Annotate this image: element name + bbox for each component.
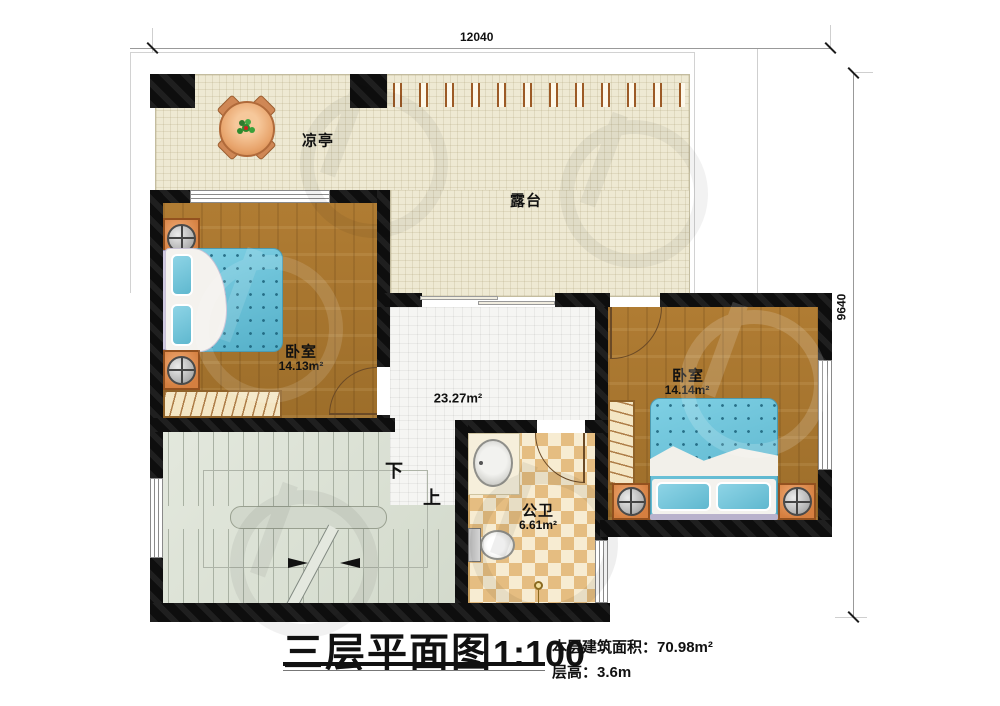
area-bedroom-left: 14.13m² xyxy=(279,359,324,373)
wall-segment xyxy=(377,293,422,307)
window xyxy=(818,360,832,470)
terrace-railing xyxy=(393,83,685,107)
door-leaf xyxy=(610,307,612,359)
wardrobe-left-bedroom xyxy=(163,390,282,418)
lamp-icon xyxy=(617,487,646,516)
wall-segment xyxy=(377,190,390,367)
label-terrace: 露台 xyxy=(510,190,542,211)
nightstand xyxy=(163,350,200,390)
dimension-top-value: 12040 xyxy=(460,30,493,44)
area-bedroom-right: 14.14m² xyxy=(665,383,710,397)
pillow xyxy=(171,304,193,346)
window xyxy=(150,478,163,558)
stair-arrow-left-icon xyxy=(340,558,360,568)
floor-drain-stem xyxy=(538,590,539,604)
floor-height-text: 层高：3.6m xyxy=(552,661,631,682)
floor-area-text: 本层建筑面积：70.98m² xyxy=(552,636,713,657)
lamp-icon xyxy=(783,487,812,516)
stair-up-label: 上 xyxy=(423,484,441,510)
stair-arrow-right-icon xyxy=(288,558,308,568)
wall-segment xyxy=(660,293,832,307)
label-pavilion: 凉亭 xyxy=(302,130,334,151)
bed-left xyxy=(165,248,283,352)
dimension-line-top xyxy=(130,48,830,49)
sliding-door xyxy=(420,296,498,300)
wall-segment xyxy=(585,420,608,433)
extension-line xyxy=(830,25,831,48)
bed-right xyxy=(650,398,778,520)
wardrobe-right-bedroom xyxy=(608,400,635,485)
dimension-right-value: 9640 xyxy=(834,294,848,321)
area-hall: 23.27m² xyxy=(434,391,482,406)
wall-segment xyxy=(150,418,395,432)
pillow xyxy=(171,254,193,296)
wall-segment xyxy=(555,293,610,307)
wall-segment xyxy=(600,520,832,537)
table-plant xyxy=(242,124,250,132)
stair-handrail xyxy=(230,506,387,529)
door-leaf xyxy=(583,433,585,483)
reference-line xyxy=(757,48,758,293)
sink-tap xyxy=(479,461,483,465)
wall-segment xyxy=(150,74,195,108)
wall-segment xyxy=(150,190,163,478)
lamp-icon xyxy=(167,356,196,385)
extension-line xyxy=(855,72,873,73)
area-bathroom: 6.61m² xyxy=(519,518,557,532)
nightstand xyxy=(778,483,816,520)
door-leaf xyxy=(329,413,377,415)
title-underline-thin xyxy=(283,670,545,671)
sliding-door xyxy=(478,301,555,305)
dimension-line-right xyxy=(853,73,854,618)
extension-line xyxy=(835,617,867,618)
window xyxy=(190,190,330,203)
stair-down-label: 下 xyxy=(385,457,403,483)
title-underline-thick xyxy=(283,662,545,666)
nightstand xyxy=(612,483,650,520)
toilet-bowl xyxy=(480,530,515,560)
window xyxy=(595,540,608,603)
pillow xyxy=(656,482,711,511)
wall-segment xyxy=(350,74,387,108)
pillow xyxy=(716,482,771,511)
plan-title: 三层平面图 xyxy=(283,631,493,675)
wall-segment xyxy=(818,293,832,360)
wall-segment xyxy=(455,420,468,605)
floor-drain xyxy=(534,581,543,590)
floor-plan: 凉亭 露台 卧室 14.13m² 23.27m² 卧室 14.14m² 公卫 6… xyxy=(0,0,1000,706)
room-hall-floor xyxy=(390,307,595,420)
